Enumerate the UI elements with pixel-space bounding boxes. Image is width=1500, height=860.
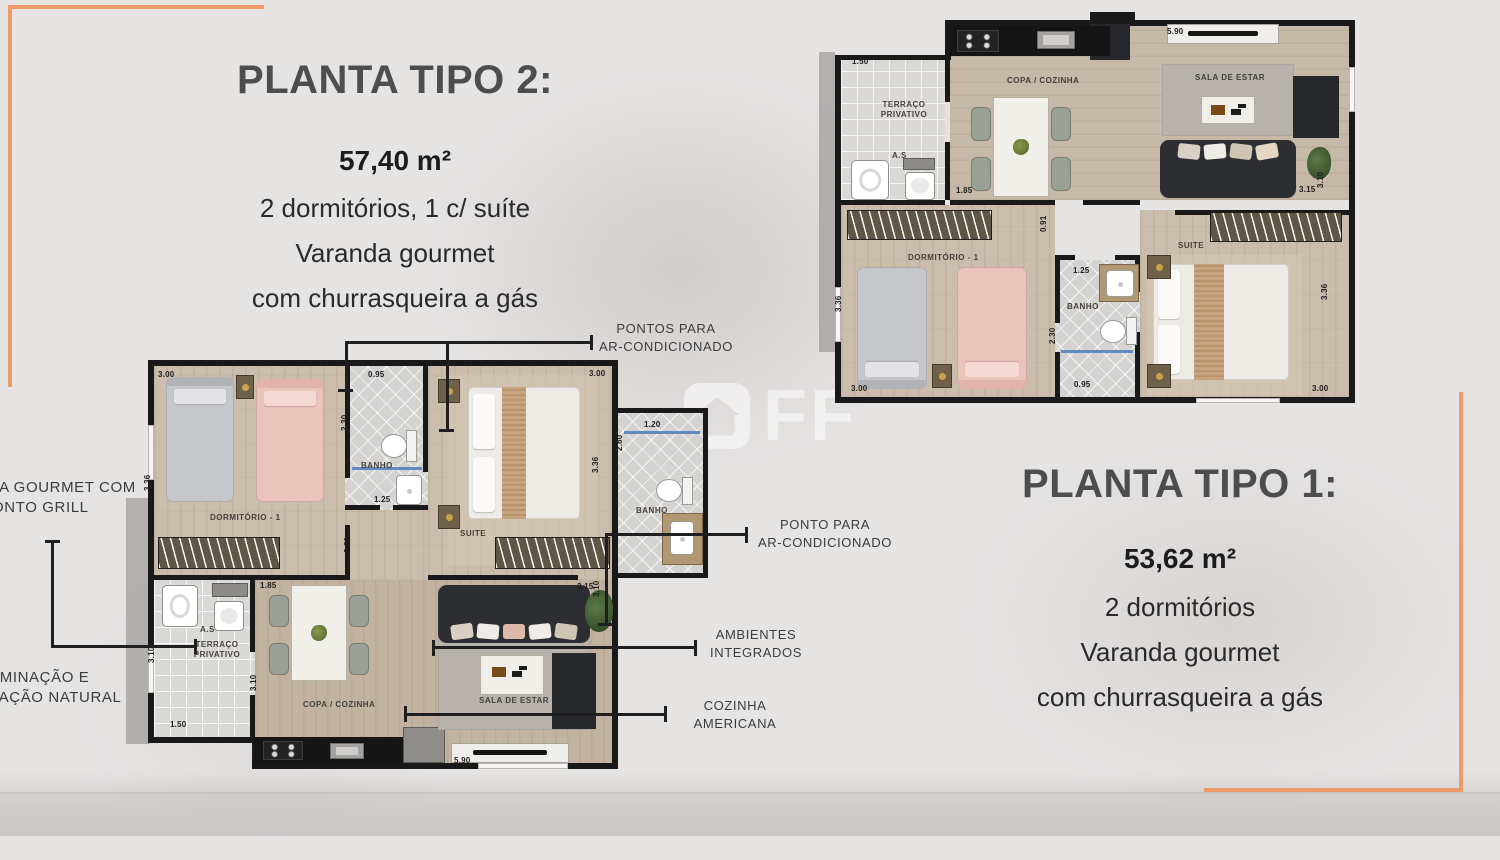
window — [148, 425, 154, 480]
floor-corridor — [345, 510, 428, 580]
wall — [612, 408, 708, 413]
dimension-label: 3.00 — [589, 370, 605, 378]
single-bed-gray — [166, 377, 234, 502]
dimension-label: 1.50 — [852, 58, 868, 66]
chair — [1051, 157, 1071, 191]
toilet — [682, 477, 693, 505]
callout-ponto-ar-condicionado: PONTO PARA AR-CONDICIONADO — [745, 516, 905, 552]
kitchen-sink — [330, 743, 364, 759]
wall — [945, 142, 950, 200]
room-label-terraco: PRIVATIVO — [865, 110, 943, 119]
window — [1196, 398, 1280, 403]
callout-iluminacao-ventilacao: ILUMINAÇÃO E VENTILAÇÃO NATURAL — [0, 668, 132, 708]
dimension-label: 3.10 — [148, 647, 156, 663]
chair — [349, 595, 369, 627]
cooktop — [957, 30, 999, 52]
bathroom-sink — [670, 521, 694, 555]
room-label-sala: SALA DE ESTAR — [1195, 73, 1265, 82]
dimension-label: 3.10 — [250, 675, 258, 691]
room-label-banho: BANHO — [1067, 302, 1099, 311]
wall — [148, 575, 345, 580]
window — [478, 763, 568, 769]
chair — [349, 643, 369, 675]
single-bed-pink — [256, 379, 324, 502]
side-table — [552, 653, 596, 729]
dining-table — [291, 585, 347, 681]
leader-line — [51, 542, 54, 648]
dimension-label: 5.90 — [1167, 28, 1183, 36]
dimension-label: 1.25 — [374, 496, 390, 504]
bathroom-sink — [1106, 270, 1134, 297]
leader-line — [345, 341, 593, 344]
dimension-label: 3.00 — [851, 385, 867, 393]
floor-plan-tipo2: 3.00 3.36 DORMITÓRIO - 1 0.95 2.30 BANHO… — [148, 355, 720, 780]
dimension-label: 2.60 — [616, 435, 624, 451]
wall — [148, 360, 618, 366]
chair — [971, 107, 991, 141]
room-label-terraco: PRIVATIVO — [178, 650, 256, 659]
wall — [950, 200, 1055, 205]
laundry-shelf — [903, 158, 935, 170]
plan1-description: 2 dormitórios Varanda gourmet com churra… — [900, 585, 1460, 720]
dimension-label: 3.15 — [1299, 186, 1315, 194]
wall — [1055, 255, 1060, 323]
room-label-terraco: TERRAÇO — [865, 100, 943, 109]
plan2-desc-line2: Varanda gourmet — [170, 231, 620, 276]
accent-line-bottom-right-h — [1204, 788, 1463, 792]
brochure-page: { "colors": { "accent": "#f09a6a", "head… — [0, 0, 1500, 836]
wall — [393, 505, 428, 510]
dimension-label: 3.10 — [1317, 172, 1325, 188]
entrance-door — [1090, 12, 1135, 24]
room-label-dormitorio1: DORMITÓRIO - 1 — [908, 253, 979, 262]
dimension-label: 1.25 — [1073, 267, 1089, 275]
nightstand — [932, 364, 952, 388]
nightstand — [1147, 255, 1171, 279]
room-label-dormitorio1: DORMITÓRIO - 1 — [210, 513, 281, 522]
plan1-area: 53,62 m² — [950, 543, 1410, 575]
window — [1349, 67, 1355, 112]
room-label-copa: COPA / COZINHA — [303, 700, 375, 709]
dimension-label: 1.50 — [170, 721, 186, 729]
leader-line — [345, 341, 348, 391]
dimension-label: 5.90 — [454, 757, 470, 765]
wall — [945, 55, 950, 102]
dimension-label: 3.36 — [835, 296, 843, 312]
laundry-tank — [905, 172, 935, 200]
shower-line — [624, 431, 700, 434]
laundry-tank — [214, 601, 244, 631]
room-label-suite: SUITE — [1178, 241, 1204, 250]
tv-console — [1167, 24, 1279, 44]
callout-pontos-ar-condicionado: PONTOS PARA AR-CONDICIONADO — [586, 320, 746, 356]
wall — [148, 737, 258, 743]
dimension-label: 3.10 — [593, 581, 601, 597]
floor-plan-tipo1: 1.50 3.10 TERRAÇO PRIVATIVO A.S 1.85 COP… — [835, 12, 1365, 410]
plan2-desc-line3: com churrasqueira a gás — [170, 276, 620, 321]
dimension-label: 3.00 — [1312, 385, 1328, 393]
dimension-label: 3.00 — [158, 371, 174, 379]
sofa — [1160, 140, 1296, 198]
dimension-label: 1.85 — [956, 187, 972, 195]
leader-tick — [664, 706, 667, 722]
toilet — [1100, 320, 1126, 343]
plan1-desc-line1: 2 dormitórios — [900, 585, 1460, 630]
leader-tick — [694, 640, 697, 656]
background-shade — [0, 792, 1500, 836]
wall — [703, 408, 708, 578]
wardrobe — [1210, 212, 1342, 242]
wall — [250, 695, 255, 737]
plan2-desc-line1: 2 dormitórios, 1 c/ suíte — [170, 186, 620, 231]
toilet — [406, 430, 417, 462]
plan1-title: PLANTA TIPO 1: — [950, 462, 1410, 507]
callout-cozinha-americana: COZINHA AMERICANA — [655, 697, 815, 733]
wall — [345, 505, 380, 510]
coffee-table — [480, 655, 544, 695]
wall — [423, 360, 428, 472]
leader-line — [605, 533, 608, 625]
leader-tick — [338, 389, 353, 392]
wardrobe — [495, 537, 610, 569]
plan1-desc-line2: Varanda gourmet — [900, 630, 1460, 675]
leader-line — [446, 341, 449, 431]
side-table — [1293, 76, 1339, 138]
washing-machine — [851, 160, 889, 200]
leader-tick — [598, 623, 613, 626]
label-area-servico: A.S — [892, 151, 907, 160]
chair — [971, 157, 991, 191]
nightstand — [438, 505, 460, 529]
accent-line-top-left-v — [8, 5, 12, 387]
room-label-suite: SUITE — [460, 529, 486, 538]
leader-line — [404, 713, 667, 716]
room-label-copa: COPA / COZINHA — [1007, 76, 1079, 85]
dimension-label: 0.95 — [1074, 381, 1090, 389]
wall — [428, 575, 578, 580]
wall — [612, 360, 618, 769]
dimension-label: 3.15 — [577, 583, 593, 591]
dimension-label: 3.36 — [592, 457, 600, 473]
wardrobe — [158, 537, 280, 569]
nightstand — [236, 375, 254, 399]
dimension-label: 0.91 — [1040, 216, 1048, 232]
washing-machine — [162, 585, 198, 627]
toilet — [1126, 317, 1137, 345]
chair — [269, 595, 289, 627]
leader-line — [605, 533, 747, 536]
plan2-description: 2 dormitórios, 1 c/ suíte Varanda gourme… — [170, 186, 620, 321]
toilet — [381, 434, 407, 458]
dimension-label: 3.10 — [835, 104, 843, 120]
dimension-label: 0.91 — [344, 537, 352, 553]
fridge — [403, 727, 445, 763]
chair — [1051, 107, 1071, 141]
single-bed-pink — [957, 267, 1027, 389]
wall — [612, 573, 708, 578]
callout-ambientes-integrados: AMBIENTES INTEGRADOS — [676, 626, 836, 662]
dimension-label: 1.20 — [644, 421, 660, 429]
leader-tick — [590, 335, 593, 350]
shower-line — [1061, 350, 1133, 353]
dimension-label: 2.30 — [341, 415, 349, 431]
chair — [269, 643, 289, 675]
room-label-banho2: BANHO — [636, 506, 668, 515]
room-label-sala: SALA DE ESTAR — [479, 696, 549, 705]
nightstand — [1147, 364, 1171, 388]
coffee-table — [1201, 96, 1255, 124]
dimension-label: 0.95 — [368, 371, 384, 379]
bathroom-sink — [396, 475, 422, 505]
toilet — [656, 479, 682, 502]
plan1-desc-line3: com churrasqueira a gás — [900, 675, 1460, 720]
cooktop — [263, 741, 303, 760]
room-label-banho1: BANHO — [361, 461, 393, 470]
wall — [835, 200, 945, 205]
dimension-label: 1.85 — [260, 582, 276, 590]
balcony-shadow-band — [819, 52, 835, 352]
double-bed — [468, 387, 580, 519]
leader-tick — [194, 639, 197, 654]
wall — [1055, 352, 1060, 403]
dining-table — [993, 97, 1049, 197]
leader-line — [432, 646, 695, 649]
dimension-label: 3.36 — [1321, 284, 1329, 300]
laundry-shelf — [212, 583, 248, 597]
sofa — [438, 585, 590, 643]
dimension-label: 2.30 — [1049, 328, 1057, 344]
leader-line — [51, 645, 197, 648]
label-area-servico: A.S — [200, 625, 215, 634]
nightstand — [438, 379, 460, 403]
kitchen-sink — [1037, 31, 1075, 49]
callout-varanda-gourmet: VARANDA GOURMET COM PONTO GRILL — [0, 478, 155, 518]
leader-tick — [439, 429, 454, 432]
accent-line-top-left-h — [8, 5, 264, 9]
double-bed — [1153, 264, 1289, 380]
plan2-area: 57,40 m² — [200, 145, 590, 177]
single-bed-gray — [857, 267, 927, 389]
plan2-title: PLANTA TIPO 2: — [200, 58, 590, 103]
wardrobe — [847, 210, 992, 240]
wall — [1083, 200, 1140, 205]
